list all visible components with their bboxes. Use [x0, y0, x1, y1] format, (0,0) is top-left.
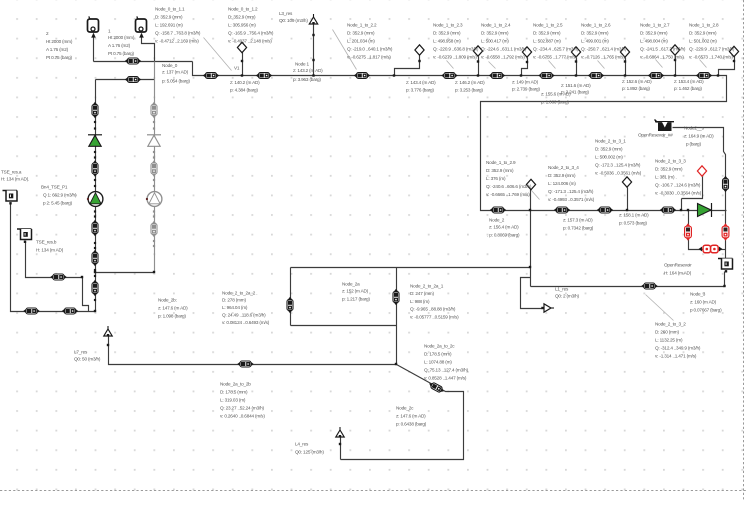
svg-text:Node_3: Node_3	[690, 291, 706, 296]
svg-text:Q0: 125 (m3/h): Q0: 125 (m3/h)	[295, 449, 324, 454]
svg-text:z: 152 (m AD): z: 152 (m AD)	[342, 289, 369, 294]
svg-text:H: 134 (m AD): H: 134 (m AD)	[36, 247, 64, 252]
svg-text:L7_res: L7_res	[74, 349, 88, 354]
svg-text:v: 0.2640 ..0.6844 (m/s): v: 0.2640 ..0.6844 (m/s)	[220, 413, 265, 418]
svg-text:Ht 2000 (mm): Ht 2000 (mm)	[46, 39, 73, 44]
svg-text:z: 164.9 (m AD): z: 164.9 (m AD)	[684, 134, 714, 139]
svg-text:OpenResevoir: OpenResevoir	[664, 262, 692, 267]
svg-text:Q: -106.7 ..124.6 (m3/h): Q: -106.7 ..124.6 (m3/h)	[655, 182, 701, 187]
svg-text:Ht 2000 (mm): Ht 2000 (mm)	[108, 35, 135, 40]
svg-text:Q: -224.6 ..631.1 (m3/h): Q: -224.6 ..631.1 (m3/h)	[481, 46, 527, 51]
svg-text:L: 201.034 (m): L: 201.034 (m)	[347, 38, 375, 43]
svg-text:p: 4.384 (barg): p: 4.384 (barg)	[230, 87, 258, 92]
svg-text:D: 352.9 (mm): D: 352.9 (mm)	[689, 30, 717, 35]
svg-text:D: 352.9 (mm): D: 352.9 (mm)	[640, 30, 668, 35]
svg-text:Node_1_to_2.4: Node_1_to_2.4	[481, 22, 511, 27]
svg-text:Node_2_to_2a_1: Node_2_to_2a_1	[410, 283, 444, 288]
svg-text:D: 260 (mm): D: 260 (mm)	[655, 329, 679, 334]
svg-text:D: 352.9 (mm): D: 352.9 (mm)	[481, 30, 509, 35]
svg-text:z: 143.2 (m AD): z: 143.2 (m AD)	[293, 68, 323, 73]
svg-text:Node 1: Node 1	[295, 62, 309, 67]
svg-text:H: 164 (m AD): H: 164 (m AD)	[664, 270, 692, 275]
svg-text:L: 988 (m): L: 988 (m)	[410, 299, 430, 304]
svg-text:p: 1.066 (barg): p: 1.066 (barg)	[541, 99, 569, 104]
svg-text:Node_1_to_2.7: Node_1_to_2.7	[640, 22, 670, 27]
svg-text:Q: -312.4 ..349.9 (m3/h): Q: -312.4 ..349.9 (m3/h)	[655, 345, 701, 350]
svg-text:p: 2.739 (barg): p: 2.739 (barg)	[512, 86, 540, 91]
svg-text:z: 160 (m AD): z: 160 (m AD)	[690, 299, 717, 304]
svg-text:Q: 23.27 ..52.24 (m3/h): Q: 23.27 ..52.24 (m3/h)	[220, 405, 264, 410]
svg-text:Node_2a_to_2c: Node_2a_to_2c	[424, 343, 455, 348]
svg-text:v: 0.8528 ..1.447 (m/s): v: 0.8528 ..1.447 (m/s)	[424, 375, 467, 380]
svg-text:L: 499.001 (m): L: 499.001 (m)	[581, 38, 609, 43]
svg-text:OpenResevoir_##: OpenResevoir_##	[638, 132, 673, 137]
svg-text:v: -0.05777 ..0.5159 (m/s): v: -0.05777 ..0.5159 (m/s)	[410, 315, 459, 320]
svg-text:L: 376 (m): L: 376 (m)	[486, 176, 506, 181]
svg-text:Node_0_to_1.1: Node_0_to_1.1	[155, 6, 185, 11]
svg-text:D: 352.9 (mm): D: 352.9 (mm)	[486, 168, 514, 173]
svg-text:H: 134 (m AD).: H: 134 (m AD).	[1, 176, 29, 181]
svg-text:D: 352.9 (mm): D: 352.9 (mm)	[655, 166, 683, 171]
svg-text:A 1.76 (m2): A 1.76 (m2)	[46, 47, 69, 52]
svg-text:Q: -220.9 ..636.8 (m3/h): Q: -220.9 ..636.8 (m3/h)	[433, 46, 479, 51]
svg-text:L: 305.956 (m): L: 305.956 (m)	[228, 22, 256, 27]
svg-text:A 1.76 (m2): A 1.76 (m2)	[108, 43, 131, 48]
svg-text:D: 352.9 (mm): D: 352.9 (mm)	[548, 173, 576, 178]
svg-text:p 2: 5.45 (barg): p 2: 5.45 (barg)	[43, 200, 72, 205]
svg-text:Q: -229.9 ..612.7 (m3/h): Q: -229.9 ..612.7 (m3/h)	[689, 46, 735, 51]
svg-text:Node_2a_to_2b: Node_2a_to_2b	[220, 381, 251, 386]
svg-text:L: 498.958 (m): L: 498.958 (m)	[433, 38, 461, 43]
svg-text:D: 178.5 (mm): D: 178.5 (mm)	[424, 351, 452, 356]
svg-text:D: 278 (mm): D: 278 (mm)	[222, 298, 246, 303]
svg-text:Pt 0.75 (barg): Pt 0.75 (barg)	[46, 55, 72, 60]
svg-text:z: 149 (m AD): z: 149 (m AD)	[512, 79, 539, 84]
svg-text:Node_0_to_1.2: Node_0_to_1.2	[228, 6, 258, 11]
svg-text:Node_1_to_2.8: Node_1_to_2.8	[689, 22, 719, 27]
svg-text:v: -0.4937 ..2.148 (m/s): v: -0.4937 ..2.148 (m/s)	[228, 38, 272, 43]
svg-text:L: 319.03 (m): L: 319.03 (m)	[220, 397, 246, 402]
svg-text:Node_2a: Node_2a	[342, 281, 360, 286]
svg-text:Q: 75.13 ..127.4 (m3/h): Q: 75.13 ..127.4 (m3/h)	[424, 367, 468, 372]
svg-text:v: -0.7126 ..1.765 (m/s): v: -0.7126 ..1.765 (m/s)	[581, 54, 625, 59]
svg-text:Q: -234.4 ..625.7 (m3/h): Q: -234.4 ..625.7 (m3/h)	[533, 46, 579, 51]
svg-text:p: 1.098 (barg): p: 1.098 (barg)	[158, 313, 186, 318]
svg-text:L: 964.04 (m): L: 964.04 (m)	[222, 305, 248, 310]
svg-text:v: -0.6755 ..1.777 (m/s): v: -0.6755 ..1.777 (m/s)	[533, 54, 577, 59]
svg-text:z: 146.2 (m AD): z: 146.2 (m AD)	[455, 80, 485, 85]
svg-text:V1: V1	[234, 65, 240, 70]
svg-text:p: 0.7342 (barg): p: 0.7342 (barg)	[563, 225, 594, 230]
svg-text:D: 352.9 (mm): D: 352.9 (mm)	[595, 146, 623, 151]
svg-text:z: 153.4 (m AD): z: 153.4 (m AD)	[674, 79, 704, 84]
svg-text:v: -0.4712 ..2.169 (m/s): v: -0.4712 ..2.169 (m/s)	[155, 38, 199, 43]
svg-text:v: -0.6279 ..1.809 (m/s): v: -0.6279 ..1.809 (m/s)	[433, 54, 477, 59]
svg-text:z: 152.6 (m AD): z: 152.6 (m AD)	[622, 79, 652, 84]
svg-text:L: 502.887 (m): L: 502.887 (m)	[533, 38, 561, 43]
svg-text:p (barg): p (barg)	[686, 142, 701, 147]
svg-text:z: 155.6 (m AD): z: 155.6 (m AD)	[541, 91, 571, 96]
svg-text:L: 381 (m) .: L: 381 (m) .	[655, 174, 677, 179]
svg-text:Node_2_to_2a_2 .: Node_2_to_2a_2 .	[222, 290, 257, 295]
svg-text:Node_1_to_2.3: Node_1_to_2.3	[433, 22, 463, 27]
svg-text:v: 0.08124 ..0.6493 (m/s): v: 0.08124 ..0.6493 (m/s)	[222, 320, 270, 325]
svg-text:v: -0.6864 ..1.750 (m/s): v: -0.6864 ..1.750 (m/s)	[640, 54, 684, 59]
svg-text:L: 501.002 (m): L: 501.002 (m)	[689, 38, 717, 43]
svg-text:z: 157.3 (m AD): z: 157.3 (m AD)	[563, 217, 593, 222]
svg-text:z: 140.2 (m AD): z: 140.2 (m AD)	[230, 80, 260, 85]
svg-text:Node_2: Node_2	[489, 217, 505, 222]
svg-text:Q: -240.6 ..606.6 (m3/h): Q: -240.6 ..606.6 (m3/h)	[486, 184, 532, 189]
svg-text:Node_0: Node_0	[162, 63, 178, 68]
svg-text:v: -0.4993 ..0.3571 (m/s): v: -0.4993 ..0.3571 (m/s)	[548, 197, 595, 202]
svg-text:Node2__s: Node2__s	[684, 125, 705, 130]
svg-text:D: 352.9 (mm): D: 352.9 (mm)	[228, 14, 256, 19]
svg-text:v: -0.5036 ..0.3561 (m/s): v: -0.5036 ..0.3561 (m/s)	[595, 170, 642, 175]
svg-text:Node_1_to_2.2: Node_1_to_2.2	[347, 22, 377, 27]
svg-text:Node_2_to_3_1: Node_2_to_3_1	[595, 138, 626, 143]
svg-text:v: -0.6665 ..1.769 (m/s): v: -0.6665 ..1.769 (m/s)	[486, 192, 530, 197]
svg-text:Q: -171.3 ..125.4 (m3/h): Q: -171.3 ..125.4 (m3/h)	[548, 189, 594, 194]
svg-text:v: -0.6573 ..1.740 (m/s): v: -0.6573 ..1.740 (m/s)	[689, 54, 733, 59]
svg-text:D: 178.5 (mm): D: 178.5 (mm)	[220, 389, 248, 394]
svg-text:L3_res: L3_res	[279, 11, 293, 16]
svg-text:z: 156.4 (m AD): z: 156.4 (m AD)	[489, 224, 519, 229]
svg-text:Pt 0.75 (barg): Pt 0.75 (barg)	[108, 51, 134, 56]
svg-text:v: -0.3030 ..0.3564 (m/s): v: -0.3030 ..0.3564 (m/s)	[655, 190, 702, 195]
svg-text:. p: 0.8069 (barg): . p: 0.8069 (barg)	[487, 232, 520, 237]
svg-text:z: 147.6 (m AD): z: 147.6 (m AD)	[158, 305, 188, 310]
svg-text:v: -1.314 ..1.471 (m/s): v: -1.314 ..1.471 (m/s)	[655, 353, 697, 358]
svg-text:Node_2_to_3_3: Node_2_to_3_3	[655, 158, 686, 163]
svg-text:Bn4_TSE_P1: Bn4_TSE_P1	[41, 184, 68, 189]
svg-text:v: -0.6558 ..1.792 (m/s): v: -0.6558 ..1.792 (m/s)	[481, 54, 525, 59]
svg-text:p 0.07667 (barg): p 0.07667 (barg)	[690, 307, 722, 312]
svg-text:D: 352.9 (mm): D: 352.9 (mm)	[155, 14, 183, 19]
svg-text:Node_1_to_2.5: Node_1_to_2.5	[533, 22, 563, 27]
svg-text:D: 352.9 (mm): D: 352.9 (mm)	[347, 30, 375, 35]
svg-text:p: 0.573 (barg): p: 0.573 (barg)	[619, 220, 647, 225]
svg-text:v: -0.6275 ..1.817 (m/s): v: -0.6275 ..1.817 (m/s)	[347, 54, 391, 59]
svg-text:Node_1_to_2.9: Node_1_to_2.9	[486, 160, 516, 165]
svg-text:Node_1_to_2.6: Node_1_to_2.6	[581, 22, 611, 27]
svg-text:p: 1.892 (barg): p: 1.892 (barg)	[622, 86, 650, 91]
svg-text:Node_2_to_3_2: Node_2_to_3_2	[655, 321, 686, 326]
svg-text:p: 3.776 (barg): p: 3.776 (barg)	[406, 87, 434, 92]
svg-text:Node_2b:: Node_2b:	[158, 297, 177, 302]
svg-text:Q0: 109 (m3/h): Q0: 109 (m3/h)	[279, 18, 308, 23]
svg-text:D: 352.9 (mm): D: 352.9 (mm)	[533, 30, 561, 35]
svg-text:Q: -250.7 ..621.4 (m3/h): Q: -250.7 ..621.4 (m3/h)	[581, 46, 627, 51]
svg-text:z: 143.4 (m AD): z: 143.4 (m AD)	[406, 80, 436, 85]
svg-text:TSE_res.a: TSE_res.a	[1, 169, 22, 174]
svg-text:L: 124.006 (m): L: 124.006 (m)	[548, 181, 576, 186]
svg-text:p: 0.6438 (barg): p: 0.6438 (barg)	[396, 421, 427, 426]
svg-text:L4_res: L4_res	[295, 441, 309, 446]
svg-text:L: 1074.88 (m): L: 1074.88 (m)	[424, 359, 452, 364]
svg-text:Q: -219.0 ..640.1 (m3/h): Q: -219.0 ..640.1 (m3/h)	[347, 46, 393, 51]
svg-text:TSE_res.b: TSE_res.b	[36, 239, 57, 244]
svg-text:L1_res: L1_res	[555, 286, 569, 291]
svg-text:Q: -165.9 ..756.4 (m3/h): Q: -165.9 ..756.4 (m3/h)	[228, 30, 274, 35]
svg-text:Q: -172.3 ..125.4 (m3/h): Q: -172.3 ..125.4 (m3/h)	[595, 162, 641, 167]
svg-text:z: 158.1 (m AD): z: 158.1 (m AD)	[619, 212, 649, 217]
svg-text:Q: -9.965 ..88.88 (m3/h): Q: -9.965 ..88.88 (m3/h)	[410, 307, 456, 312]
svg-text:Node_2c: Node_2c	[396, 405, 414, 410]
svg-text:D: 352.9 (mm): D: 352.9 (mm)	[433, 30, 461, 35]
svg-text:Q: -241.5 ..617.3 (m3/h): Q: -241.5 ..617.3 (m3/h)	[640, 46, 686, 51]
svg-text:p: 3.963 (barg): p: 3.963 (barg)	[293, 77, 321, 82]
svg-text:L: 498.004 (m): L: 498.004 (m)	[640, 38, 668, 43]
svg-text:Q0: 2 (m3/h): Q0: 2 (m3/h)	[555, 293, 580, 298]
svg-text:z: 151.6 (m AD): z: 151.6 (m AD)	[561, 83, 591, 88]
svg-text:D: 352.9 (mm): D: 352.9 (mm)	[581, 30, 609, 35]
svg-text:p: 1.217 (barg): p: 1.217 (barg)	[342, 296, 370, 301]
svg-text:L: 500.417 (m): L: 500.417 (m)	[481, 38, 509, 43]
svg-text:Q0: 50 (m3/h): Q0: 50 (m3/h)	[74, 356, 101, 361]
svg-text:D: 247 (mm): D: 247 (mm)	[410, 291, 434, 296]
svg-text:z: 147.6 (m AD): z: 147.6 (m AD)	[396, 413, 426, 418]
svg-text:z: 137 (m AD): z: 137 (m AD)	[162, 70, 189, 75]
svg-text:Node_2_to_3_4: Node_2_to_3_4	[548, 165, 579, 170]
svg-text:L: 1132.25 (m): L: 1132.25 (m)	[655, 337, 683, 342]
svg-text:Q 1: 662.9 (m3/h): Q 1: 662.9 (m3/h)	[43, 192, 77, 197]
svg-text:p: 3.253 (barg): p: 3.253 (barg)	[455, 87, 483, 92]
svg-text:L: 192.691 (m): L: 192.691 (m)	[155, 22, 183, 27]
svg-text:Q: 24.49 ..118.6 (m3/h): Q: 24.49 ..118.6 (m3/h)	[222, 313, 266, 318]
svg-text:p: 5.054 (barg): p: 5.054 (barg)	[162, 78, 190, 83]
svg-text:p: 1.462 (barg): p: 1.462 (barg)	[674, 86, 702, 91]
svg-text:L: 500.002 (m): L: 500.002 (m)	[595, 154, 623, 159]
svg-text:Q: -158.7 ..763.8 (m3/h): Q: -158.7 ..763.8 (m3/h)	[155, 30, 201, 35]
